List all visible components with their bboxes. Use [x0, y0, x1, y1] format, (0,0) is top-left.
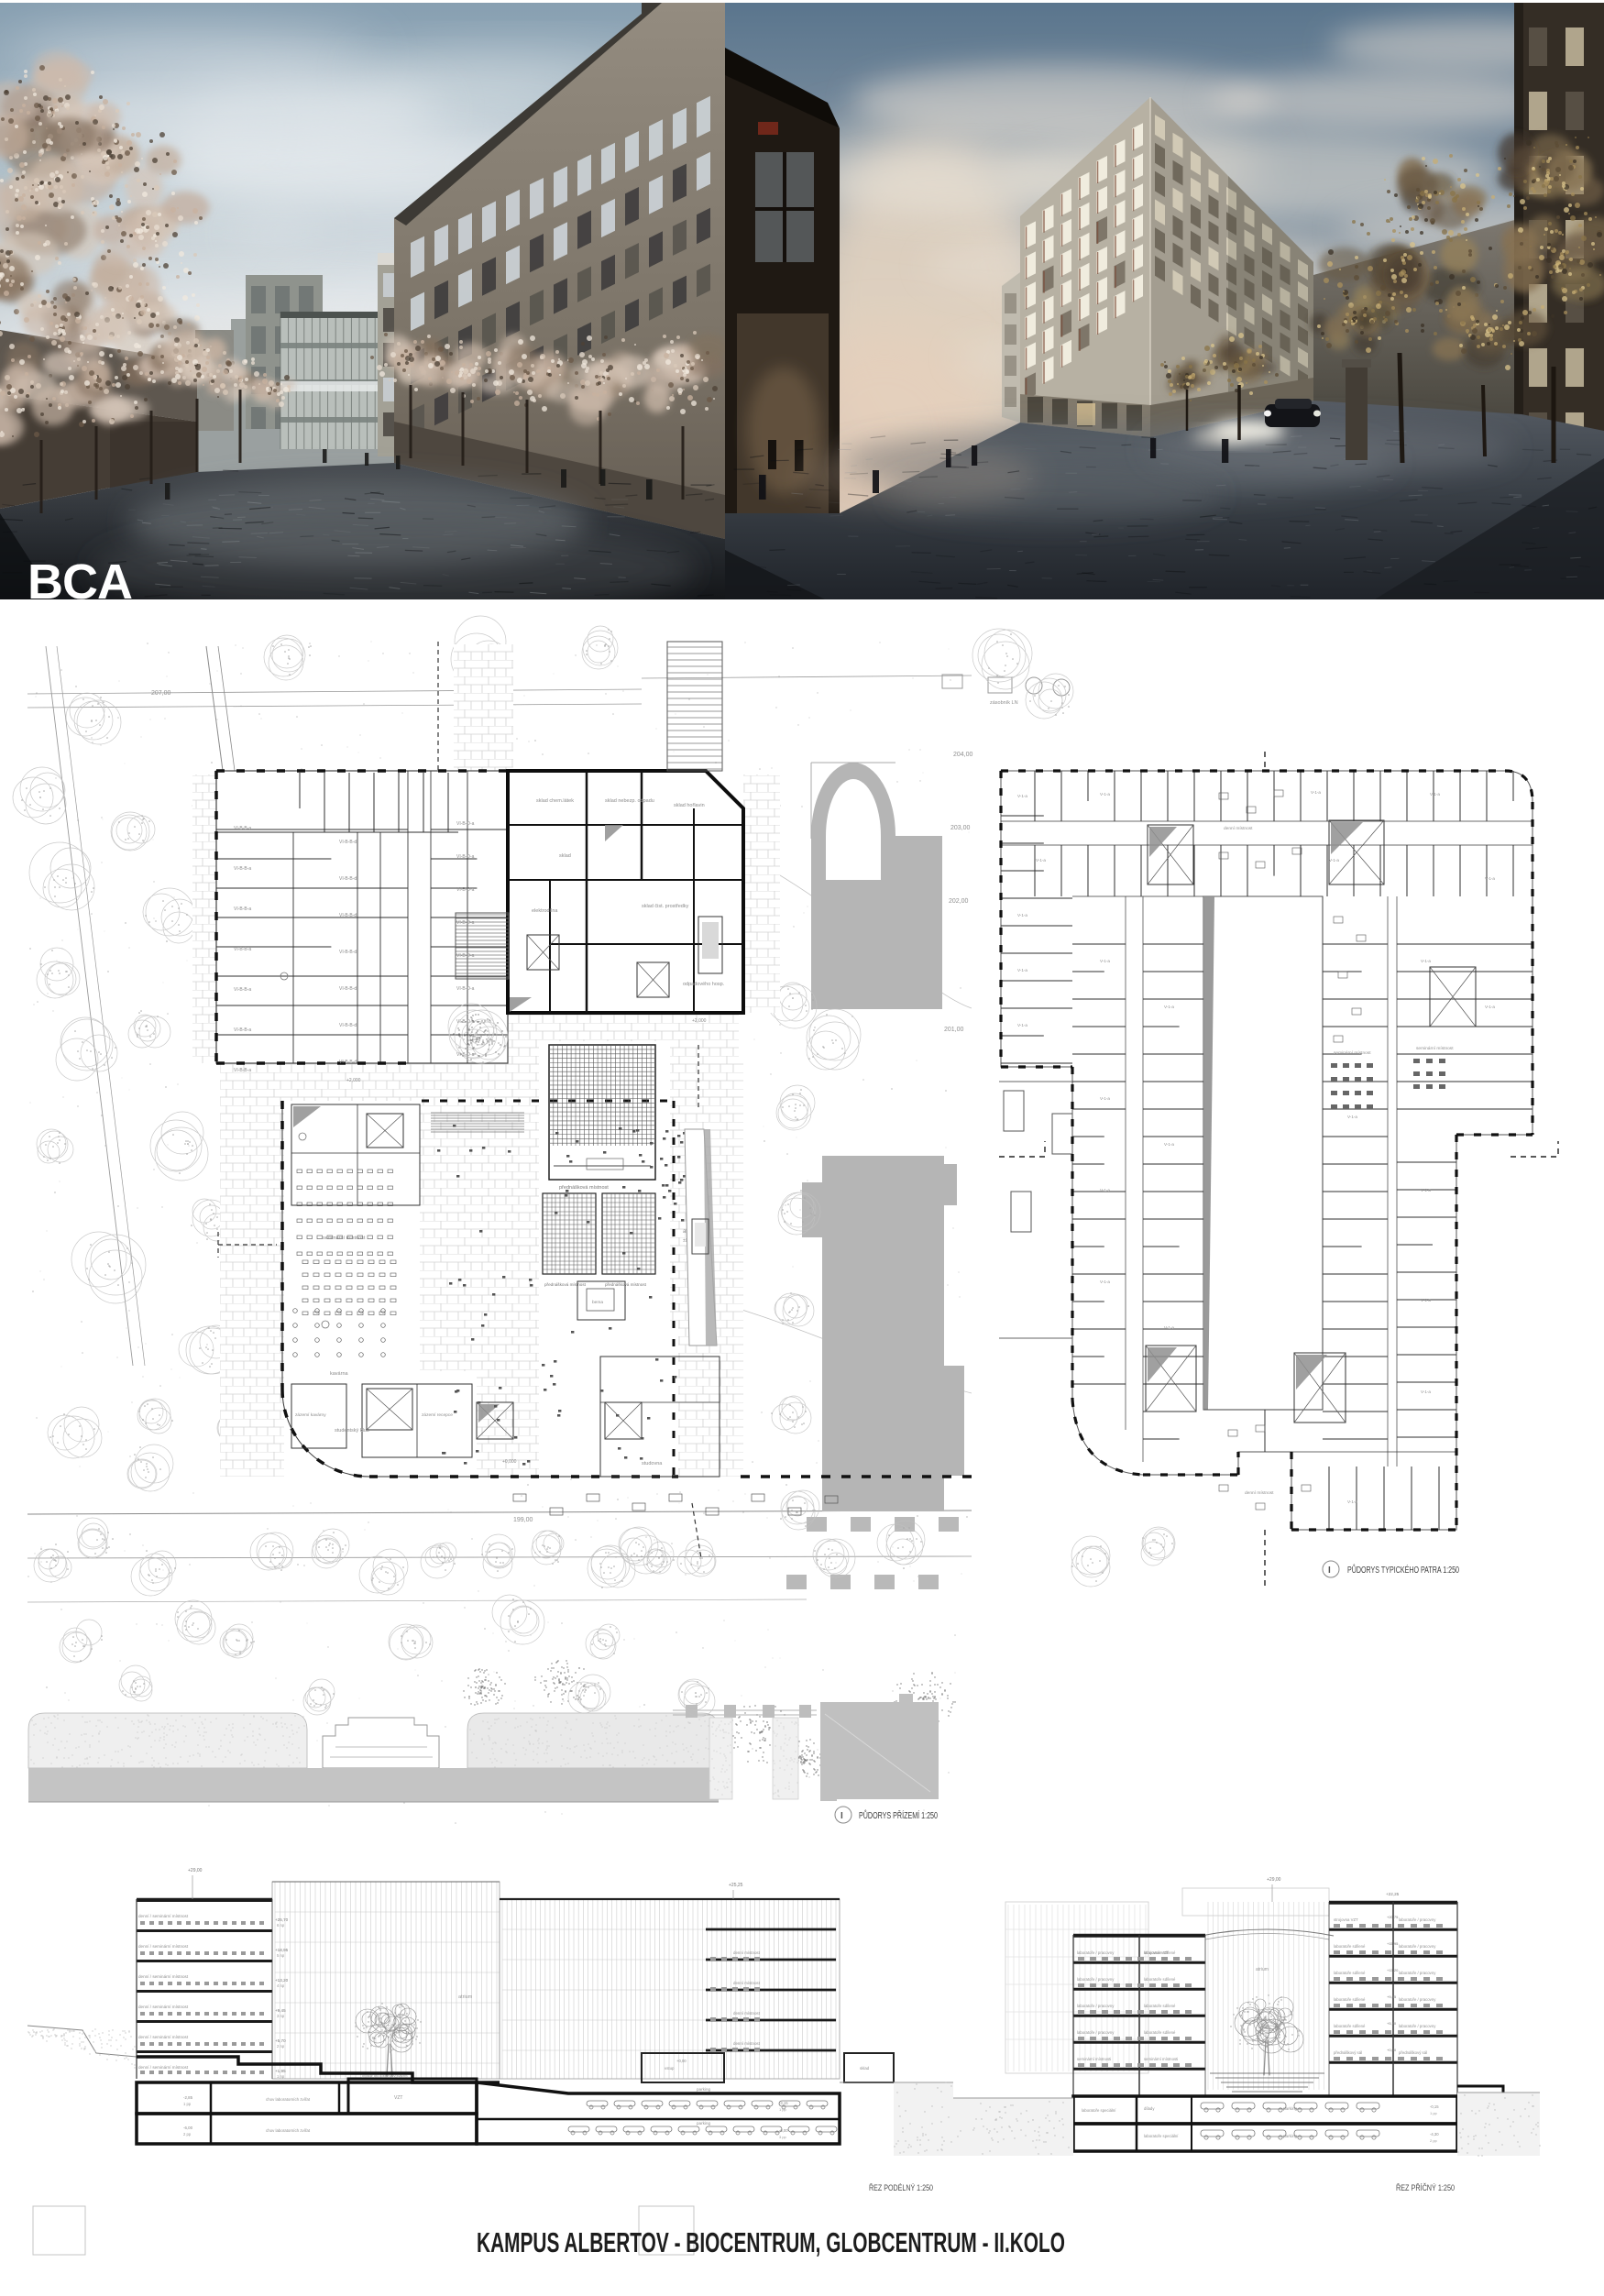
svg-text:VI-B-B-a: VI-B-B-a: [234, 1027, 251, 1033]
svg-text:VI-B-D-a: VI-B-D-a: [456, 953, 475, 959]
svg-text:VI-B-B-a: VI-B-B-a: [234, 866, 251, 872]
svg-text:odpadového hosp.: odpadového hosp.: [683, 982, 725, 987]
svg-text:VI-B-B-a: VI-B-B-a: [234, 906, 251, 912]
svg-text:VI-B-B-a: VI-B-B-a: [234, 947, 251, 952]
svg-text:sklad hořlavin: sklad hořlavin: [674, 803, 705, 808]
svg-text:201,00: 201,00: [944, 1027, 964, 1033]
svg-text:VI-B-B-a: VI-B-B-a: [234, 1068, 251, 1073]
svg-text:sklad nebezp. odpadu: sklad nebezp. odpadu: [605, 798, 654, 804]
svg-text:VI-B-D-a: VI-B-D-a: [456, 986, 475, 992]
svg-text:VI-B-B-d: VI-B-B-d: [339, 840, 357, 845]
svg-text:VI-B-B-d: VI-B-B-d: [339, 1060, 357, 1065]
svg-text:207,00: 207,00: [151, 690, 171, 697]
svg-text:203,00: 203,00: [950, 825, 971, 831]
svg-text:202,00: 202,00: [949, 898, 969, 905]
svg-text:elektrodílna: elektrodílna: [532, 908, 558, 914]
svg-text:zásobník LN: zásobník LN: [990, 700, 1018, 706]
svg-text:VI-B-B-d: VI-B-B-d: [339, 1023, 357, 1028]
svg-text:sklad chem.látek: sklad chem.látek: [536, 798, 574, 804]
svg-text:sklad čist. prostředky: sklad čist. prostředky: [642, 904, 689, 909]
svg-text:VI-B-B-a: VI-B-B-a: [234, 826, 251, 831]
svg-text:VI-B-B-d: VI-B-B-d: [339, 950, 357, 955]
svg-text:VI-B-D-a: VI-B-D-a: [456, 854, 475, 860]
svg-text:VI-B-D-a: VI-B-D-a: [456, 887, 475, 893]
svg-text:VI-B-D-a: VI-B-D-a: [456, 821, 475, 827]
svg-text:sklad: sklad: [559, 853, 571, 859]
svg-text:VI-B-B-d: VI-B-B-d: [339, 986, 357, 992]
svg-text:VI-B-B-d: VI-B-B-d: [339, 876, 357, 882]
svg-text:VI-B-D-a: VI-B-D-a: [456, 920, 475, 926]
svg-text:204,00: 204,00: [953, 752, 973, 758]
svg-text:VI-B-B-a: VI-B-B-a: [234, 987, 251, 993]
svg-text:VI-B-B-d: VI-B-B-d: [339, 913, 357, 918]
svg-text:199,00: 199,00: [513, 1517, 533, 1523]
